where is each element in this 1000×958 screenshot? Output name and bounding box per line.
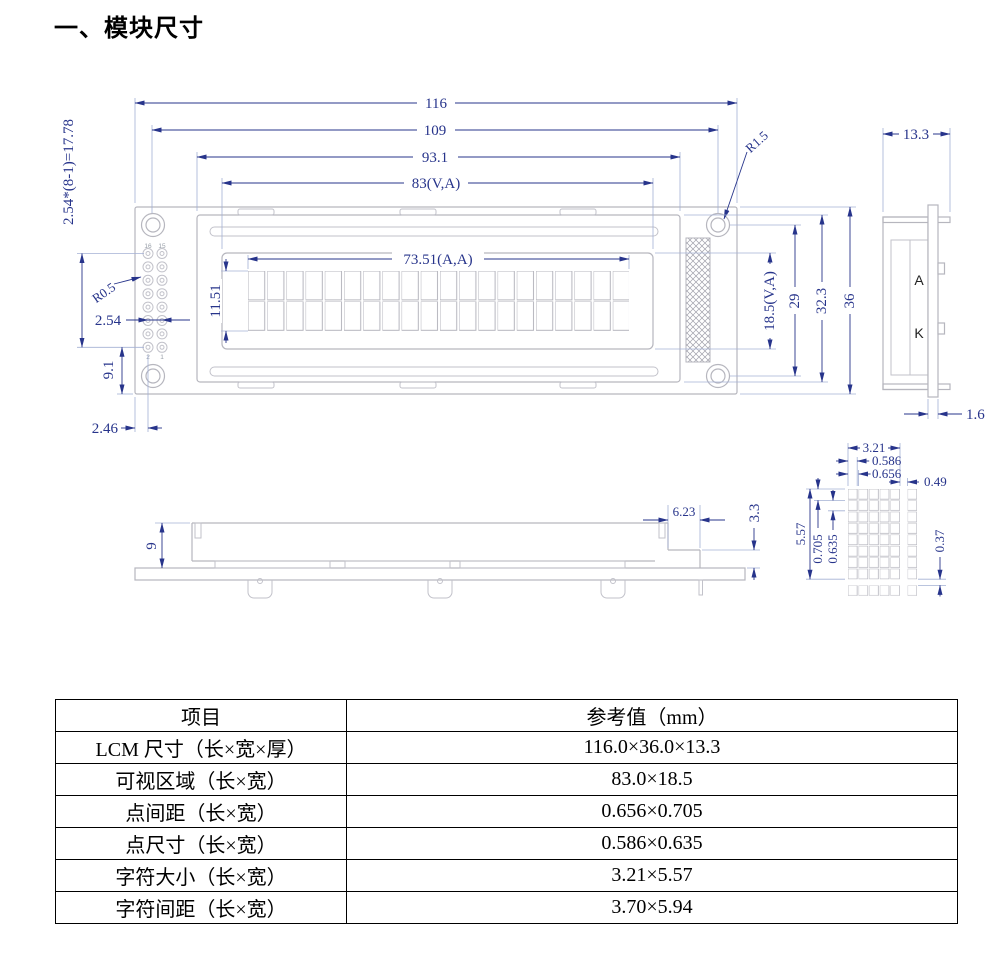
character-cells bbox=[248, 271, 629, 331]
side-view: A K 13.3 1.6 bbox=[883, 127, 985, 423]
dim-pin-left: 2.46 bbox=[92, 421, 119, 437]
pin-number-1: 1 bbox=[160, 354, 164, 361]
row-item: 字符间距（长×宽） bbox=[56, 892, 347, 924]
row-item: 可视区域（长×宽） bbox=[56, 764, 347, 796]
table-row: 字符间距（长×宽） 3.70×5.94 bbox=[56, 892, 958, 924]
dim-dot-pitch-x: 0.656 bbox=[872, 466, 902, 481]
front-view-dimensions: 116 109 93.1 83(V,A) 73.51(A,A) bbox=[61, 96, 858, 437]
top-flange bbox=[883, 217, 950, 223]
next-row-corner-dot bbox=[908, 585, 917, 595]
pin-number-16: 16 bbox=[144, 243, 152, 250]
top-slot bbox=[210, 227, 658, 236]
row-item: 点间距（长×宽） bbox=[56, 796, 347, 828]
header-item: 项目 bbox=[56, 700, 347, 732]
row-value: 0.586×0.635 bbox=[347, 828, 958, 860]
row-value: 3.21×5.57 bbox=[347, 860, 958, 892]
zebra-connector-hatch bbox=[686, 238, 710, 362]
next-char-column bbox=[908, 489, 917, 579]
dim-height-bezel: 32.3 bbox=[814, 288, 830, 314]
front-view: 16 15 2 1 bbox=[135, 207, 737, 394]
table-row: 可视区域（长×宽） 83.0×18.5 bbox=[56, 764, 958, 796]
datasheet-page: 一、模块尺寸 bbox=[0, 0, 1000, 958]
dim-pin-pitch: 2.54 bbox=[95, 313, 122, 329]
bottom-flange bbox=[883, 384, 950, 390]
row-value: 0.656×0.705 bbox=[347, 796, 958, 828]
pin-header-pads bbox=[143, 249, 167, 353]
dot-pitch-detail: 3.21 0.586 0.656 0.49 5.57 0.7 bbox=[793, 440, 947, 597]
table-row: 字符大小（长×宽） 3.21×5.57 bbox=[56, 860, 958, 892]
dim-dot-pitch-y: 0.705 bbox=[810, 534, 825, 563]
dim-dot-height: 0.635 bbox=[825, 534, 840, 563]
bottom-view: 9 6.23 3.3 bbox=[135, 504, 763, 598]
table-header-row: 项目 参考值（mm） bbox=[56, 700, 958, 732]
dim-width-holes: 109 bbox=[424, 123, 447, 139]
table-row: LCM 尺寸（长×宽×厚） 116.0×36.0×13.3 bbox=[56, 732, 958, 764]
dim-char-gap-y: 0.37 bbox=[932, 529, 947, 552]
backlight-pin bbox=[699, 580, 703, 595]
dim-pin-span: 2.54*(8-1)=17.78 bbox=[61, 119, 77, 225]
table-row: 点间距（长×宽） 0.656×0.705 bbox=[56, 796, 958, 828]
mount-hole bbox=[142, 365, 165, 388]
mount-hole bbox=[707, 214, 730, 237]
row-item: LCM 尺寸（长×宽×厚） bbox=[56, 732, 347, 764]
anode-label: A bbox=[914, 272, 924, 288]
dim-tail-width: 6.23 bbox=[673, 504, 696, 519]
row-item: 字符大小（长×宽） bbox=[56, 860, 347, 892]
pcb-edge bbox=[928, 205, 938, 397]
dim-height-viewing: 18.5(V,A) bbox=[762, 271, 778, 331]
header-value: 参考值（mm） bbox=[347, 700, 958, 732]
dim-pcb-thickness: 1.6 bbox=[966, 407, 985, 423]
dim-bottom-height: 9 bbox=[144, 542, 160, 550]
dim-height-holes: 29 bbox=[787, 294, 803, 309]
cathode-label: K bbox=[914, 325, 924, 341]
dim-thickness: 13.3 bbox=[903, 127, 929, 143]
dim-width-bezel: 93.1 bbox=[422, 150, 448, 166]
row-value: 3.70×5.94 bbox=[347, 892, 958, 924]
dot-matrix-5x8 bbox=[848, 489, 900, 579]
dim-height-active: 11.51 bbox=[208, 284, 224, 317]
next-row-dots bbox=[848, 585, 900, 595]
table-row: 点尺寸（长×宽） 0.586×0.635 bbox=[56, 828, 958, 860]
mount-hole bbox=[707, 365, 730, 388]
dim-width-active: 73.51(A,A) bbox=[403, 252, 472, 268]
dim-char-gap-x: 0.49 bbox=[924, 474, 947, 489]
mount-hole bbox=[142, 214, 165, 237]
spec-table: 项目 参考值（mm） LCM 尺寸（长×宽×厚） 116.0×36.0×13.3… bbox=[55, 699, 958, 924]
dim-height-total: 36 bbox=[842, 293, 858, 309]
dim-width-total: 116 bbox=[425, 96, 447, 112]
row-item: 点尺寸（长×宽） bbox=[56, 828, 347, 860]
lcd-glass bbox=[891, 240, 910, 375]
backlight-block bbox=[910, 240, 928, 375]
dim-char-height: 5.57 bbox=[793, 522, 808, 545]
row-value: 83.0×18.5 bbox=[347, 764, 958, 796]
dim-pad-radius: R0.5 bbox=[89, 279, 118, 306]
bottom-slot bbox=[210, 367, 658, 376]
pin-number-15: 15 bbox=[158, 243, 166, 250]
row-value: 116.0×36.0×13.3 bbox=[347, 732, 958, 764]
module-body bbox=[883, 217, 928, 390]
dim-tail-height: 3.3 bbox=[747, 504, 763, 523]
dim-width-viewing: 83(V,A) bbox=[412, 176, 460, 192]
dim-pin-bottom: 9.1 bbox=[101, 361, 117, 380]
dim-hole-radius: R1.5 bbox=[742, 128, 771, 156]
